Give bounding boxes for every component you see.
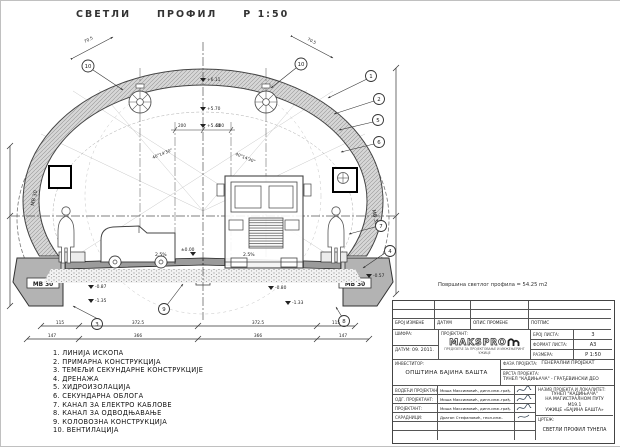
callout-10-right: 10 — [271, 58, 307, 88]
svg-text:-0.57: -0.57 — [373, 273, 385, 279]
staff-name: Миша Максимовић, дипл.инж.грађ. — [437, 404, 514, 412]
type-value: ТУНЕЛ "КАДИЊАЧА" - ГРАЂЕВИНСКИ ДЕО — [503, 377, 611, 382]
svg-text:200: 200 — [216, 123, 224, 128]
left-vertical-dim — [7, 143, 13, 309]
slope-right: 2.5% — [243, 252, 255, 258]
legend-item: 3. ТЕМЕЉИ СЕКУНДАРНЕ КОНСТРУКЦИЈЕ — [53, 366, 203, 375]
legend-item: 9. КОЛОВОЗНА КОНСТРУКЦИЈА — [53, 418, 203, 427]
left-wall-cabinet — [49, 166, 71, 188]
svg-text:7: 7 — [379, 224, 382, 230]
staff-row-empty — [393, 431, 535, 440]
bottom-dim-row2: 147 366 366 147 — [24, 333, 372, 342]
svg-text:±0.00: ±0.00 — [181, 247, 195, 253]
legend-item: 5. ХИДРОИЗОЛАЦИЈА — [53, 383, 203, 392]
svg-text:8: 8 — [342, 319, 346, 325]
investor-cell: ИНВЕСТИТОР: ОПШТИНА БАЈИНА БАШТА — [393, 360, 501, 385]
signature-scribble — [514, 404, 535, 412]
legend-item: 10. ВЕНТИЛАЦИЈА — [53, 426, 203, 435]
staff-name: Драган Стефановић, геол.инж. — [437, 413, 514, 421]
drawing-label: ЦРТЕЖ: — [538, 417, 611, 422]
staff-role: ПРОЈЕКТАНТ: — [393, 404, 437, 412]
investor-value: ОПШТИНА БАЈИНА БАШТА — [395, 370, 498, 376]
svg-text:147: 147 — [339, 333, 347, 339]
sheet-info-cell: БРОЈ ЛИСТА: 3 ФОРМАТ ЛИСТА: А3 РАЗМЕРА: … — [531, 330, 612, 360]
rev-header: ПОТПИС — [529, 319, 611, 330]
legend-item: 6. СЕКУНДАРНА ОБЛОГА — [53, 392, 203, 401]
staff-row-empty — [393, 422, 535, 431]
signature-scribble — [514, 395, 535, 403]
staff-row: САРАДНИЦИ: Драган Стефановић, геол.инж. — [393, 413, 535, 422]
legend-item: 7. КАНАЛ ЗА ЕЛЕКТРО КАБЛОВЕ — [53, 401, 203, 410]
drawing-sheet: СВЕТЛИ ПРОФИЛ Р 1:50 — [0, 0, 620, 447]
sheet-no-value: 3 — [573, 330, 612, 339]
staff-table: ВОДЕЋИ ПРОЈЕКТАНТ: Миша Максимовић, дипл… — [393, 386, 536, 440]
svg-text:70.5: 70.5 — [83, 35, 94, 44]
format-label: ФОРМАТ ЛИСТА: — [531, 340, 573, 349]
callout-2: 2 — [334, 94, 385, 115]
svg-text:115: 115 — [56, 320, 64, 326]
project-name-cell: НАЗИВ ПРОЈЕКТА И ЛОКАЛИТЕТ: ТУНЕЛ "КАДИЊ… — [536, 386, 613, 440]
svg-text:2: 2 — [377, 97, 380, 103]
right-wall-cabinet — [333, 168, 357, 192]
phase-label: ФАЗА ПРОЈЕКТА: — [503, 361, 537, 368]
drawing-name-value: СВЕТЛИ ПРОФИЛ ТУНЕЛА — [538, 428, 611, 433]
svg-text:366: 366 — [254, 333, 262, 339]
right-vertical-dim — [393, 65, 399, 297]
scale-value: Р 1:50 — [573, 350, 612, 360]
code-label: ШИФРА: — [395, 331, 412, 336]
legend-item: 8. КАНАЛ ЗА ОДВОДЊАВАЊЕ — [53, 409, 203, 418]
logo-arches-icon — [507, 336, 520, 347]
staff-name: Миша Максимовић, дипл.инж.грађ. — [437, 395, 514, 403]
staff-row: ПРОЈЕКТАНТ: Миша Максимовић, дипл.инж.гр… — [393, 404, 535, 413]
date-label: ДАТУМ: — [395, 347, 411, 352]
svg-text:70.5: 70.5 — [307, 36, 318, 45]
svg-text:+6.11: +6.11 — [207, 77, 221, 83]
investor-label: ИНВЕСТИТОР: — [395, 361, 498, 366]
slope-left: 2.5% — [155, 252, 167, 258]
staff-role: ВОДЕЋИ ПРОЈЕКТАНТ: — [393, 386, 437, 394]
staff-role: САРАДНИЦИ: — [393, 413, 437, 421]
date-value: 09. 2011. — [412, 348, 434, 353]
svg-text:115: 115 — [332, 320, 340, 326]
svg-text:4: 4 — [388, 249, 392, 255]
svg-text:147: 147 — [48, 333, 56, 339]
format-value: А3 — [573, 340, 612, 349]
dim-705-left: 70.5 — [73, 35, 113, 58]
legend-item: 4. ДРЕНАЖА — [53, 375, 203, 384]
svg-text:9: 9 — [162, 307, 166, 313]
dim-705-right: 70.5 — [293, 36, 333, 58]
phase-type-cell: ФАЗА ПРОЈЕКТА: ГЕНЕРАЛНИ ПРОЈЕКАТ ВРСТА … — [501, 360, 613, 385]
svg-text:-0.80: -0.80 — [275, 285, 287, 291]
rev-header: ОПИС ПРОМЕНЕ — [471, 319, 529, 330]
svg-text:6: 6 — [377, 140, 381, 146]
rev-header: БРОЈ ИЗМЕНЕ — [393, 319, 435, 330]
project-name-line: УЖИЦЕ «БАЈИНА БАШТА» — [538, 408, 611, 413]
svg-text:3: 3 — [95, 322, 98, 328]
van-side-view — [101, 226, 175, 268]
company-sub2: УЖИЦЕ — [441, 352, 528, 356]
legend-item: 2. ПРИМАРНА КОНСТРУКЦИЈА — [53, 358, 203, 367]
tunnel-cross-section-drawing: МВ 30 МВ 30 — [3, 6, 403, 351]
svg-text:372.5: 372.5 — [132, 320, 145, 326]
svg-text:10: 10 — [85, 64, 92, 70]
signature-scribble — [514, 413, 535, 421]
rev-header: ДАТУМ — [435, 319, 471, 330]
bottom-dim-row1: 115 372.5 372.5 115 — [38, 320, 358, 329]
svg-text:10: 10 — [298, 62, 305, 68]
svg-text:+5.70: +5.70 — [207, 106, 221, 112]
staff-row: ОДГ. ПРОЈЕКТАНТ: Миша Максимовић, дипл.и… — [393, 395, 535, 404]
drawing-name-cell: ЦРТЕЖ: СВЕТЛИ ПРОФИЛ ТУНЕЛА — [536, 416, 613, 434]
type-label: ВРСТА ПРОЈЕКТА: — [503, 371, 611, 376]
scale-label: РАЗМЕРА: — [531, 350, 573, 360]
svg-text:366: 366 — [134, 333, 142, 339]
revision-table: БРОЈ ИЗМЕНЕ ДАТУМ ОПИС ПРОМЕНЕ ПОТПИС — [393, 301, 614, 330]
angle-left: 40°14'30" — [152, 147, 174, 160]
svg-text:-0.87: -0.87 — [95, 284, 107, 290]
legend-item: 1. ЛИНИЈА ИСКОПА — [53, 349, 203, 358]
svg-text:1: 1 — [369, 74, 372, 80]
company-cell: ПРОЈЕКТАНТ: MAKSPRO ПРЕДУЗЕЋЕ ЗА ПРОЈЕКТ… — [439, 330, 531, 360]
svg-text:5: 5 — [376, 118, 379, 124]
staff-name: Миша Максимовић, дипл.инж.грађ. — [437, 386, 514, 394]
signature-scribble — [514, 386, 535, 394]
svg-text:-1.33: -1.33 — [292, 300, 304, 306]
legend-list: 1. ЛИНИЈА ИСКОПА 2. ПРИМАРНА КОНСТРУКЦИЈ… — [53, 349, 203, 435]
svg-text:372.5: 372.5 — [252, 320, 265, 326]
truck-rear-view — [217, 176, 311, 268]
project-name-line: НА МАГИСТРАЛНОМ ПУТУ М19.1 — [538, 397, 611, 408]
svg-text:-1.35: -1.35 — [95, 298, 107, 304]
title-block: БРОЈ ИЗМЕНЕ ДАТУМ ОПИС ПРОМЕНЕ ПОТПИС ШИ… — [392, 300, 615, 444]
phase-value: ГЕНЕРАЛНИ ПРОЈЕКАТ — [541, 361, 594, 368]
profile-area-note: Површина светлог профила = 54.25 m2 — [438, 282, 547, 288]
callout-1: 1 — [328, 71, 377, 99]
staff-row: ВОДЕЋИ ПРОЈЕКТАНТ: Миша Максимовић, дипл… — [393, 386, 535, 395]
staff-role: ОДГ. ПРОЈЕКТАНТ: — [393, 395, 437, 403]
code-date-cell: ШИФРА: ДАТУМ: 09. 2011. — [393, 330, 439, 360]
sheet-no-label: БРОЈ ЛИСТА: — [531, 330, 573, 339]
callout-9: 9 — [159, 284, 184, 315]
svg-text:200: 200 — [178, 123, 186, 128]
